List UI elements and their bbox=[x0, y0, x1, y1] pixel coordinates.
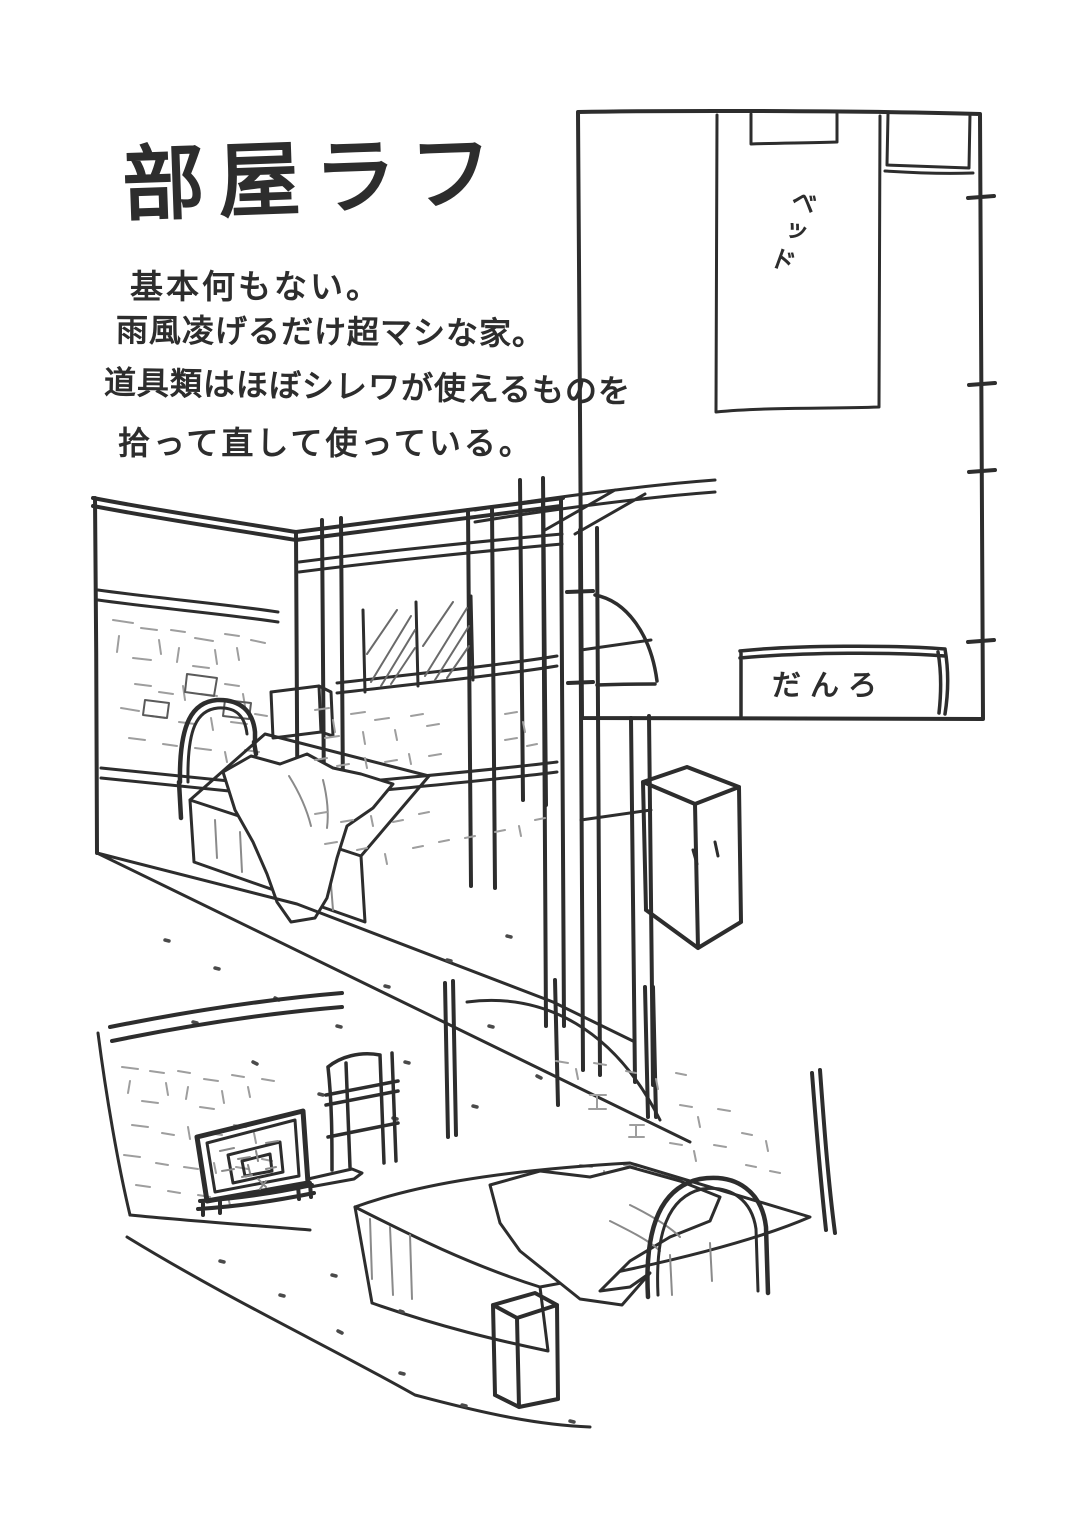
sketch1-crate bbox=[643, 767, 741, 948]
fireplace-poker bbox=[308, 1169, 362, 1187]
plan-window-box bbox=[885, 114, 973, 173]
page-title: 部屋ラフ bbox=[120, 105, 508, 237]
sketch2-blanket bbox=[490, 1167, 720, 1305]
note-line-4: 拾って直して使っている。 bbox=[118, 418, 534, 464]
sketch2-ladder-rack bbox=[326, 1053, 398, 1170]
fireplace-room-sketch bbox=[70, 975, 870, 1455]
plan-fireplace-label: だんろ bbox=[772, 662, 886, 704]
note-line-1: 基本何もない。 bbox=[130, 260, 382, 308]
sketch-page: { "page": { "title": "部屋ラフ", "notes": { … bbox=[0, 0, 1080, 1524]
sketch1-window-wall-posts bbox=[322, 500, 564, 1026]
sketch1-blanket bbox=[223, 754, 393, 922]
note-line-2: 雨風凌げるだけ超マシな家。 bbox=[116, 305, 545, 355]
sketch2-back-wall-texture bbox=[556, 1061, 780, 1181]
sketch2-floor-dots bbox=[220, 1261, 574, 1422]
note-line-3: 道具類はほぼシレワが使えるものを bbox=[104, 357, 632, 412]
sketch2-fireplace bbox=[197, 1111, 362, 1215]
plan-pillow bbox=[751, 114, 837, 144]
